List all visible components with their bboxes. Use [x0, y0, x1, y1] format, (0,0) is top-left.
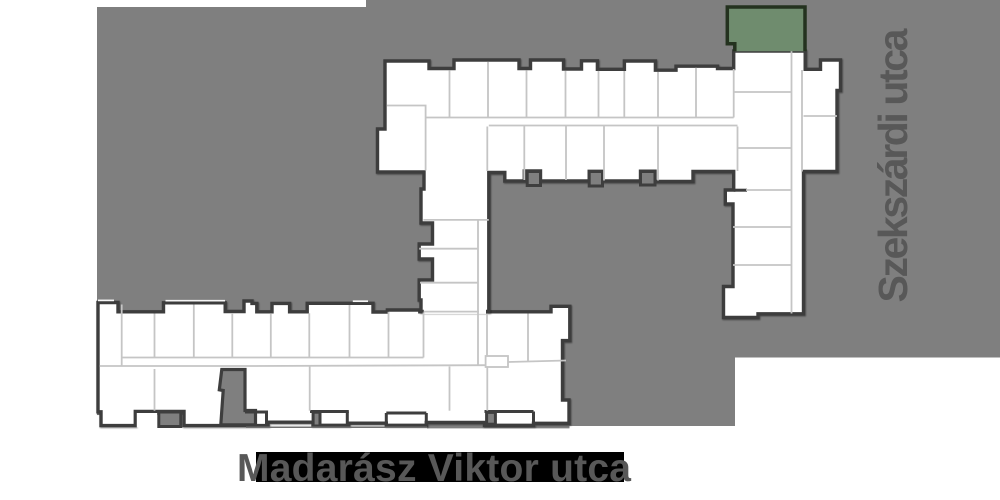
svg-text:Szekszárdi utca: Szekszárdi utca: [870, 27, 916, 302]
svg-text:Madarász Viktor utca: Madarász Viktor utca: [237, 447, 631, 490]
